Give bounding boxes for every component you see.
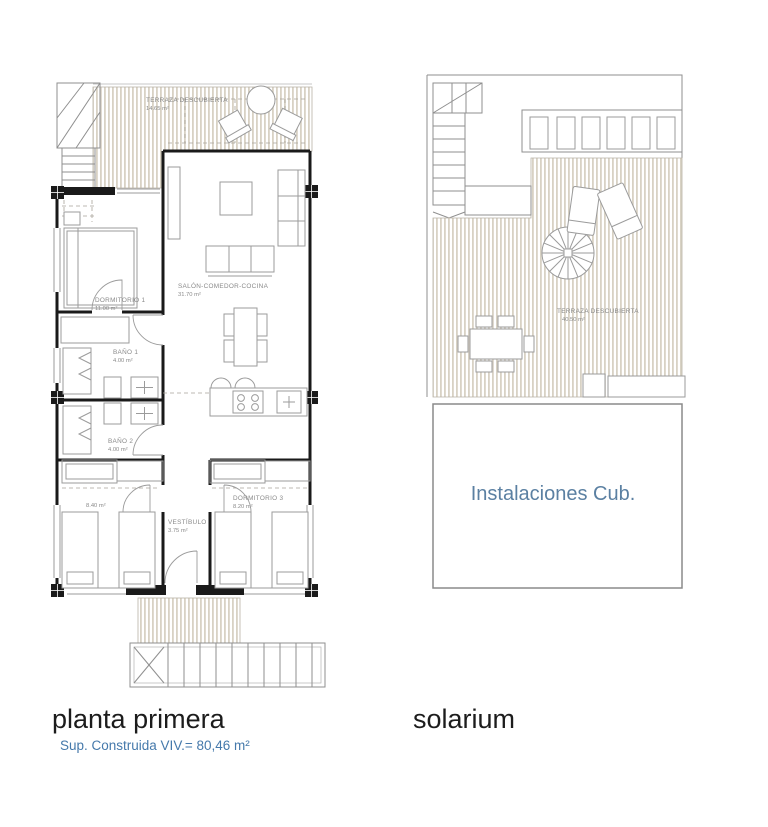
room-label-bano1-area: 4.00 m² — [113, 358, 133, 364]
sofa-icon — [278, 170, 305, 246]
dining-table-icon — [470, 329, 522, 359]
door-arc — [133, 315, 163, 345]
dining-chair-icon — [498, 361, 514, 372]
solarium-decking — [433, 158, 682, 397]
wardrobe-icon — [210, 460, 310, 488]
room-label-terraza1-name: TERRAZA DESCUBIERTA — [146, 97, 228, 104]
dining-chair-icon — [476, 316, 492, 327]
sofa-icon — [206, 246, 274, 276]
room-label-terraza1-area: 14.65 m² — [146, 106, 169, 112]
dining-chair-icon — [458, 336, 468, 352]
dining-chair-icon — [498, 316, 514, 327]
solarium-plan: TERRAZA DESCUBIERTA 40.50 m² — [427, 75, 685, 588]
plan-subtitle-superficie: Sup. Construida VIV.= 80,46 m² — [60, 738, 250, 753]
room-label-bano1-name: BAÑO 1 — [113, 347, 138, 356]
terrace-steps — [583, 374, 685, 397]
kitchen — [163, 308, 307, 416]
kitchen-table-icon — [234, 308, 257, 366]
coffee-table-icon — [220, 182, 252, 215]
room-label-instalaciones: Instalaciones Cub. — [471, 483, 636, 505]
outdoor-table-icon — [247, 86, 275, 114]
floor-plan-sheet: TERRAZA DESCUBIERTA 14.65 m² — [0, 0, 768, 827]
bottom-staircase — [130, 643, 325, 687]
room-label-terraza2-area: 40.50 m² — [562, 317, 585, 323]
shower-icon — [63, 406, 91, 454]
pergola-slats — [522, 110, 682, 152]
tv-unit-icon — [168, 167, 180, 239]
room-label-salon-name: SALÓN-COMEDOR-COCINA — [178, 281, 269, 290]
room-label-bano2-area: 4.00 m² — [108, 447, 128, 453]
wardrobe-icon — [62, 460, 163, 488]
toilet-icon — [104, 403, 121, 424]
dining-chair-icon — [476, 361, 492, 372]
room-label-dormitorio1-name: DORMITORIO 1 — [95, 297, 145, 304]
room-label-bano2-name: BAÑO 2 — [108, 436, 133, 445]
room-label-terraza2-name: TERRAZA DESCUBIERTA — [557, 308, 639, 315]
plan-title-solarium: solarium — [413, 704, 515, 734]
stair-landing — [465, 186, 531, 215]
door-arc — [133, 425, 163, 455]
door-arc — [165, 551, 197, 583]
room-label-vestibulo-area: 3.75 m² — [168, 528, 188, 534]
double-bed-icon — [64, 212, 137, 308]
room-label-dormitorio2-area: 8.40 m² — [86, 503, 106, 509]
living-room-furniture — [168, 167, 305, 276]
lower-terrace-decking — [138, 598, 240, 643]
footer-labels: planta primera Sup. Construida VIV.= 80,… — [52, 704, 515, 753]
room-label-vestibulo-name: VESTÍBULO — [168, 517, 207, 526]
room-label-dormitorio1-area: 11.00 m² — [95, 306, 118, 312]
bathroom1-fixtures — [61, 317, 158, 398]
door-arc — [123, 485, 150, 512]
shower-icon — [63, 348, 91, 394]
stool-icon — [235, 378, 255, 388]
stool-icon — [211, 378, 231, 388]
solarium-staircase — [433, 83, 482, 218]
floor-plan-drawing: TERRAZA DESCUBIERTA 14.65 m² — [0, 0, 768, 827]
toilet-icon — [104, 377, 121, 398]
plan-title-planta-primera: planta primera — [52, 704, 226, 734]
dining-chair-icon — [524, 336, 534, 352]
room-label-salon-area: 31.70 m² — [178, 292, 201, 298]
room-label-dormitorio3-name: DORMITORIO 3 — [233, 495, 283, 502]
planta-primera-plan: TERRAZA DESCUBIERTA 14.65 m² — [51, 83, 325, 687]
washbasin-icon — [131, 403, 158, 424]
sun-lounger-icon — [567, 186, 600, 235]
washbasin-icon — [131, 377, 158, 398]
bathtub-icon — [61, 317, 129, 343]
